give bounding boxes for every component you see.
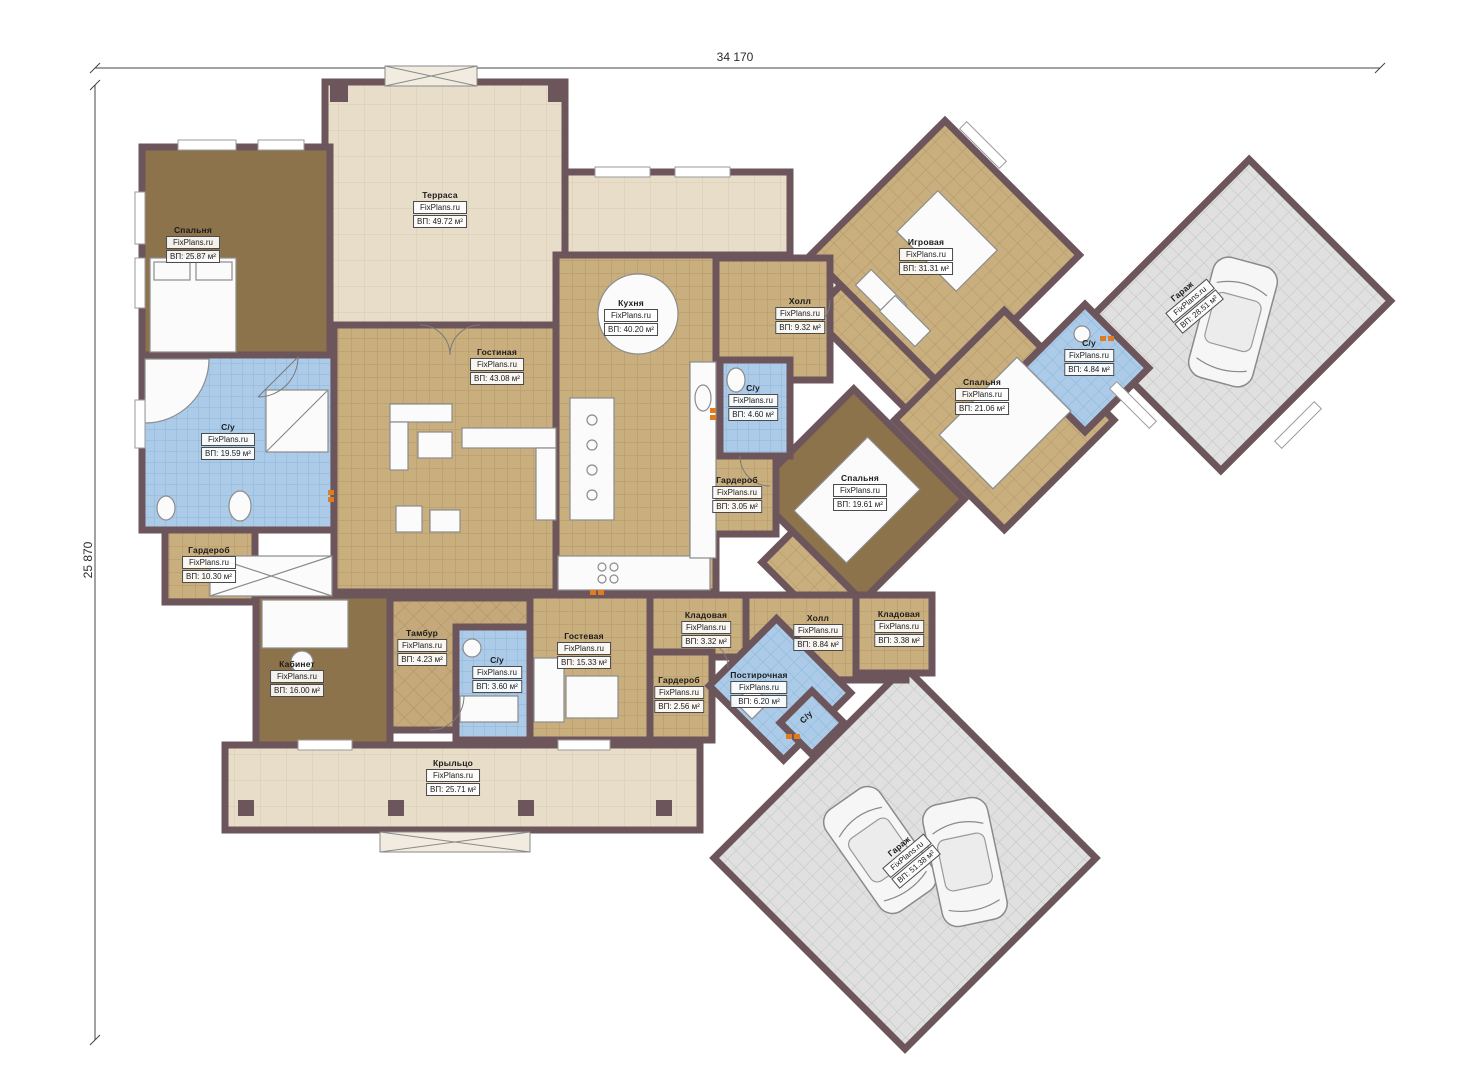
room-terrace-floor [325,82,565,325]
dimension-width-label: 34 170 [717,50,754,64]
floorplan-page: 34 170 25 870 Спальня FixPlans.ru ВП: 25… [0,0,1474,1080]
room-walkway-floor [565,172,790,255]
dimension-height-label: 25 870 [81,542,95,579]
room-pantry-left-floor [650,595,746,657]
room-pantry-right-floor [856,595,932,673]
floorplan-drawing [0,0,1474,1080]
room-porch-floor [225,745,700,830]
room-wardrobe-bottom-floor [650,652,712,740]
